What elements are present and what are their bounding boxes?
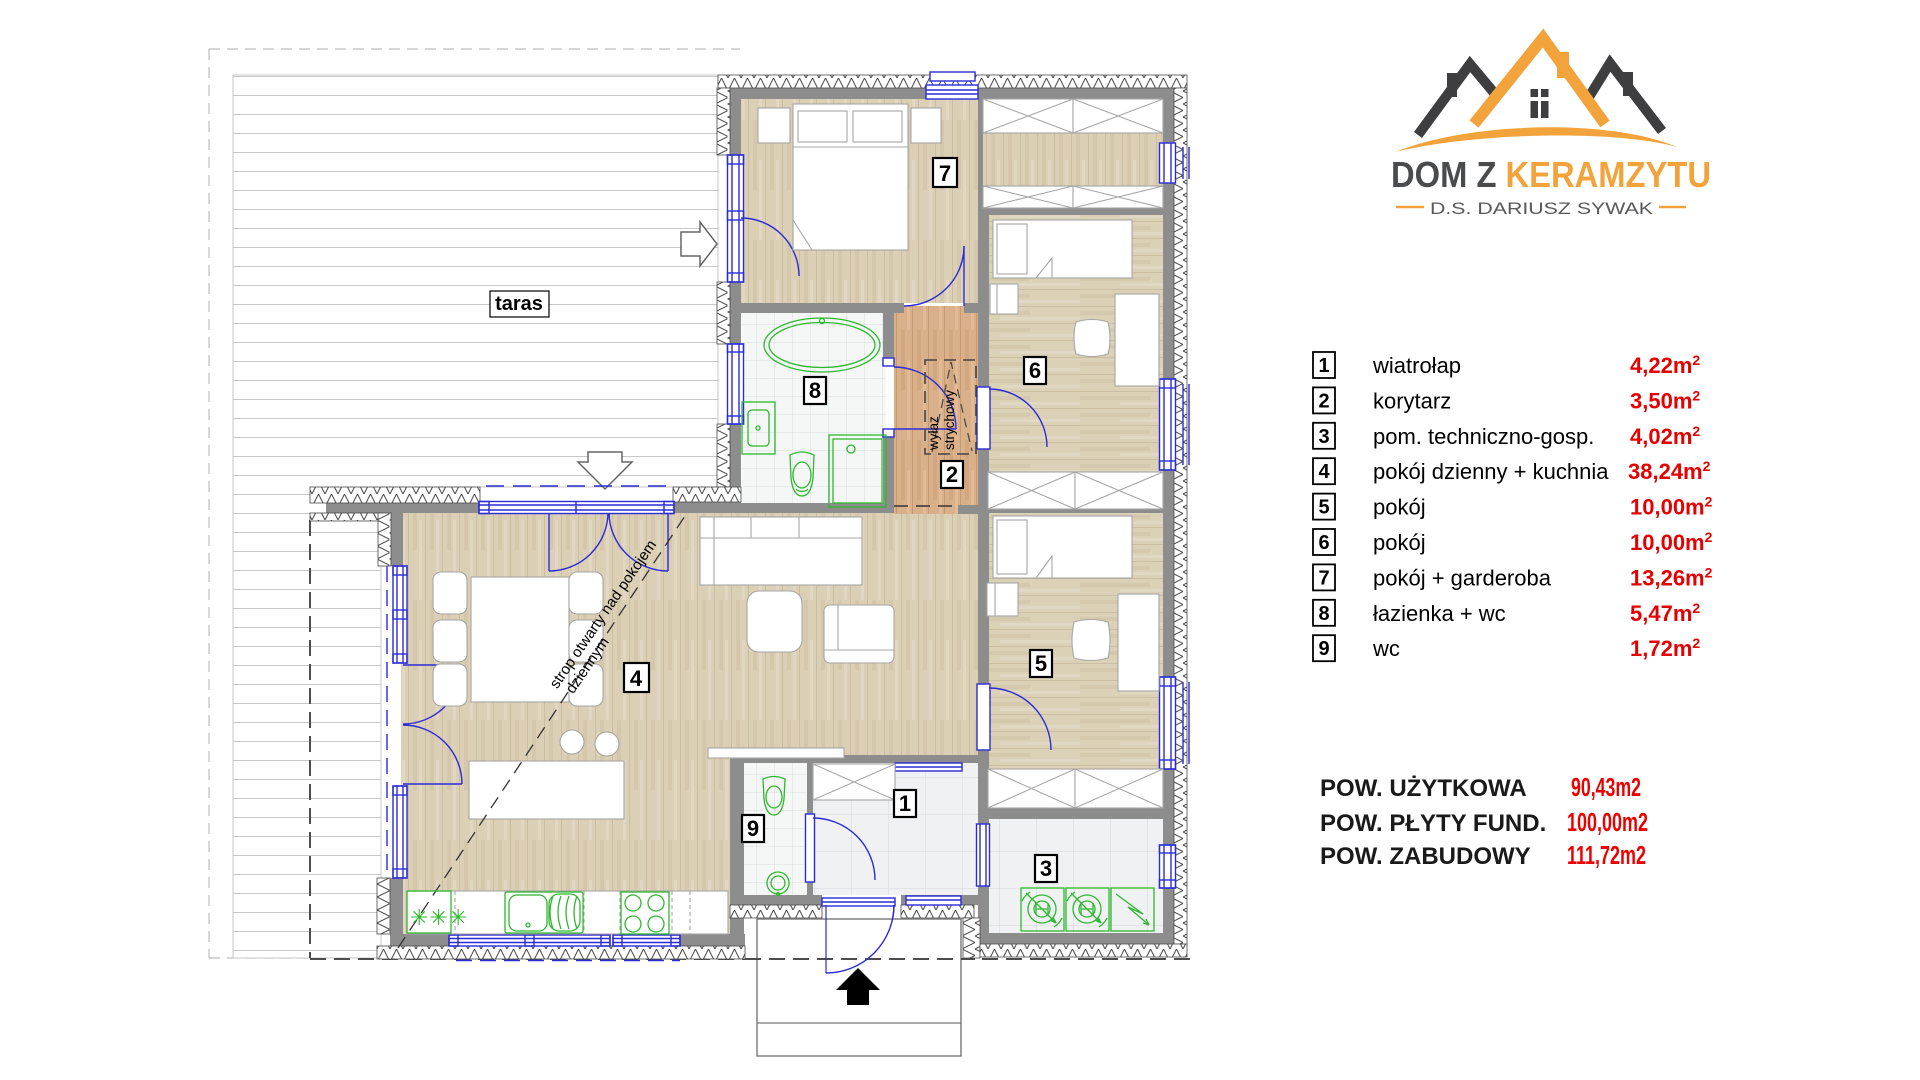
- svg-text:3: 3: [1318, 426, 1329, 448]
- svg-text:4,02m2: 4,02m2: [1630, 423, 1700, 449]
- svg-text:4: 4: [630, 666, 643, 691]
- svg-text:pokój dzienny + kuchnia: pokój dzienny + kuchnia: [1373, 459, 1609, 484]
- svg-text:5: 5: [1035, 651, 1047, 676]
- svg-text:taras: taras: [495, 293, 543, 315]
- svg-text:10,00m2: 10,00m2: [1630, 529, 1713, 555]
- svg-text:6: 6: [1318, 532, 1329, 554]
- svg-text:POW. UŻYTKOWA: POW. UŻYTKOWA: [1320, 775, 1527, 802]
- svg-text:8: 8: [809, 378, 821, 403]
- svg-text:6: 6: [1029, 358, 1041, 383]
- svg-text:POW. PŁYTY FUND.: POW. PŁYTY FUND.: [1320, 810, 1546, 837]
- svg-text:7: 7: [1318, 567, 1329, 589]
- svg-text:pokój: pokój: [1373, 530, 1426, 555]
- svg-text:90,43m2: 90,43m2: [1571, 774, 1641, 802]
- svg-text:2: 2: [1318, 390, 1329, 412]
- svg-text:strychowy: strychowy: [942, 390, 957, 450]
- svg-text:13,26m2: 13,26m2: [1630, 564, 1713, 590]
- svg-text:9: 9: [1318, 638, 1329, 660]
- svg-text:łazienka + wc: łazienka + wc: [1373, 601, 1506, 626]
- svg-text:✳✳✳: ✳✳✳: [410, 905, 468, 930]
- svg-text:pom. techniczno-gosp.: pom. techniczno-gosp.: [1373, 424, 1594, 449]
- svg-text:DOM Z KERAMZYTU: DOM Z KERAMZYTU: [1391, 154, 1711, 195]
- svg-text:9: 9: [747, 816, 759, 841]
- svg-text:10,00m2: 10,00m2: [1630, 494, 1713, 520]
- svg-text:4,22m2: 4,22m2: [1630, 352, 1700, 378]
- svg-text:3: 3: [1040, 856, 1052, 881]
- svg-text:100,00m2: 100,00m2: [1567, 809, 1648, 837]
- svg-text:5,47m2: 5,47m2: [1630, 600, 1700, 626]
- svg-text:wiatrołap: wiatrołap: [1372, 353, 1461, 378]
- svg-text:7: 7: [939, 161, 951, 186]
- svg-text:1,72m2: 1,72m2: [1630, 635, 1700, 661]
- svg-text:8: 8: [1318, 603, 1329, 625]
- svg-text:1: 1: [1318, 355, 1329, 377]
- svg-text:38,24m2: 38,24m2: [1628, 458, 1711, 484]
- svg-text:wc: wc: [1372, 636, 1400, 661]
- svg-text:pokój + garderoba: pokój + garderoba: [1373, 565, 1552, 590]
- svg-text:4: 4: [1318, 461, 1330, 483]
- svg-text:pokój: pokój: [1373, 495, 1426, 520]
- svg-text:wyłaz: wyłaz: [926, 416, 941, 451]
- svg-text:D.S. DARIUSZ SYWAK: D.S. DARIUSZ SYWAK: [1430, 200, 1653, 218]
- svg-text:1: 1: [899, 791, 911, 816]
- svg-text:111,72m2: 111,72m2: [1567, 842, 1646, 870]
- svg-text:2: 2: [946, 462, 958, 487]
- svg-text:korytarz: korytarz: [1373, 388, 1451, 413]
- svg-text:5: 5: [1318, 497, 1329, 519]
- svg-text:3,50m2: 3,50m2: [1630, 387, 1700, 413]
- svg-text:POW. ZABUDOWY: POW. ZABUDOWY: [1320, 843, 1531, 870]
